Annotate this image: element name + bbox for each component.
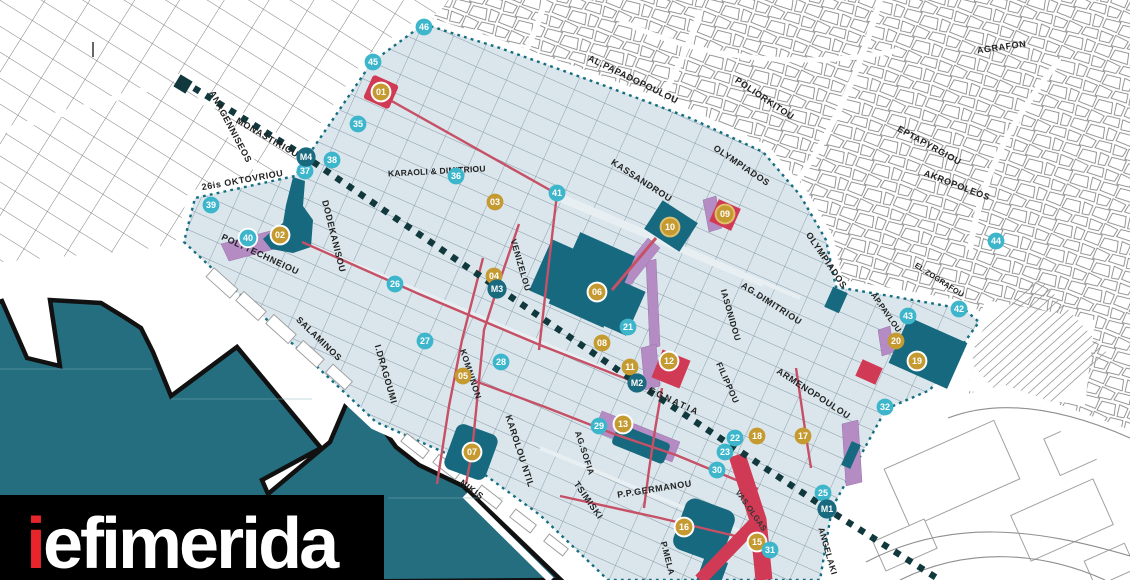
svg-text:27: 27 xyxy=(420,336,430,346)
svg-text:38: 38 xyxy=(327,155,337,165)
svg-text:37: 37 xyxy=(300,166,310,176)
svg-text:02: 02 xyxy=(275,230,285,240)
svg-text:19: 19 xyxy=(912,356,922,366)
svg-text:17: 17 xyxy=(798,431,808,441)
svg-text:09: 09 xyxy=(720,209,730,219)
svg-text:21: 21 xyxy=(623,322,633,332)
svg-text:18: 18 xyxy=(752,431,762,441)
svg-text:16: 16 xyxy=(679,522,689,532)
svg-text:39: 39 xyxy=(206,200,216,210)
svg-text:22: 22 xyxy=(730,433,740,443)
svg-text:20: 20 xyxy=(891,336,901,346)
svg-text:08: 08 xyxy=(597,338,607,348)
svg-text:36: 36 xyxy=(451,171,461,181)
svg-text:46: 46 xyxy=(419,22,429,32)
svg-text:23: 23 xyxy=(720,447,730,457)
svg-text:26: 26 xyxy=(390,279,400,289)
svg-text:30: 30 xyxy=(712,465,722,475)
svg-text:M4: M4 xyxy=(300,152,312,162)
svg-text:07: 07 xyxy=(467,447,477,457)
svg-text:29: 29 xyxy=(594,421,604,431)
svg-text:32: 32 xyxy=(880,402,890,412)
svg-text:15: 15 xyxy=(752,537,762,547)
svg-text:06: 06 xyxy=(592,287,602,297)
svg-text:43: 43 xyxy=(903,311,913,321)
svg-text:03: 03 xyxy=(490,197,500,207)
svg-text:25: 25 xyxy=(818,488,828,498)
svg-text:45: 45 xyxy=(368,57,378,67)
svg-text:iefimerida: iefimerida xyxy=(26,504,340,580)
svg-text:12: 12 xyxy=(664,356,674,366)
svg-text:01: 01 xyxy=(376,87,386,97)
svg-text:05: 05 xyxy=(458,371,468,381)
svg-text:M3: M3 xyxy=(491,284,503,294)
svg-text:42: 42 xyxy=(954,304,964,314)
svg-text:13: 13 xyxy=(618,419,628,429)
svg-text:44: 44 xyxy=(991,236,1001,246)
svg-text:31: 31 xyxy=(765,545,775,555)
svg-text:41: 41 xyxy=(552,188,562,198)
svg-text:M1: M1 xyxy=(821,504,833,514)
svg-text:40: 40 xyxy=(243,233,253,243)
svg-text:10: 10 xyxy=(665,222,675,232)
svg-text:11: 11 xyxy=(625,362,635,372)
svg-text:35: 35 xyxy=(353,119,363,129)
svg-text:28: 28 xyxy=(496,357,506,367)
svg-text:M2: M2 xyxy=(631,378,643,388)
